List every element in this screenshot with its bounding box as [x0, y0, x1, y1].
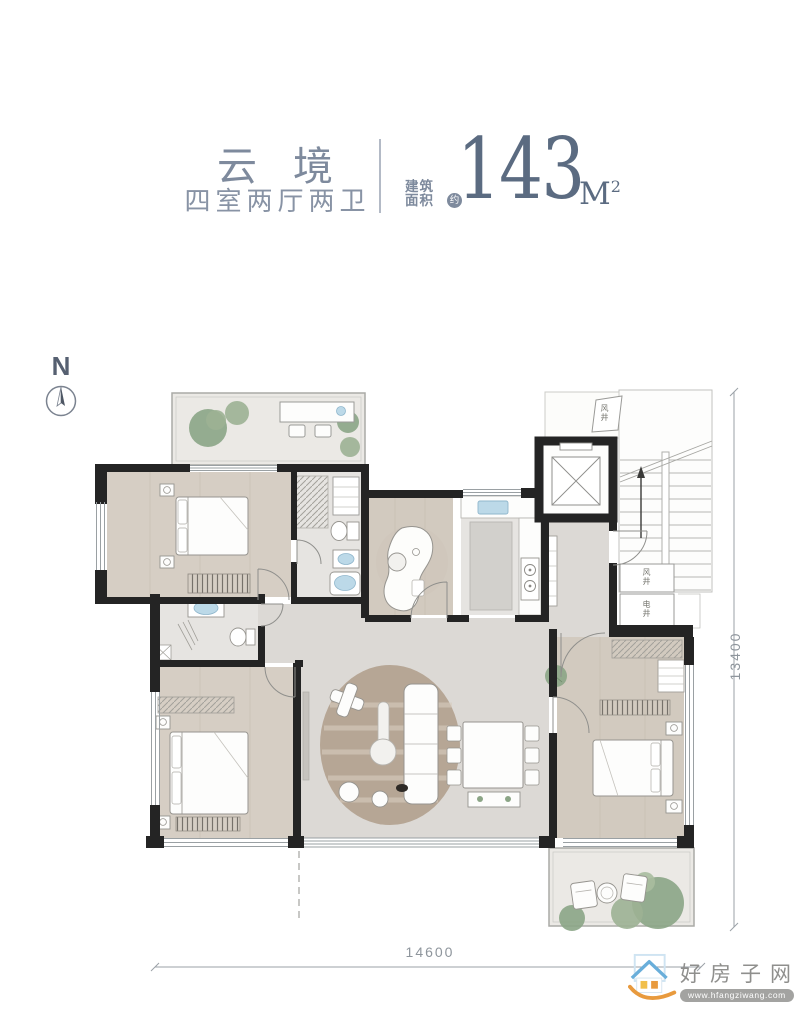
dimension-right-height: 13400: [727, 618, 743, 694]
shaft-label-right-lower: 电井: [641, 600, 652, 618]
dimension-bottom-width: 14600: [355, 944, 505, 960]
watermark: 好房子网 www.hfangziwang.com: [628, 952, 800, 1012]
elevator: [539, 441, 613, 518]
house-logo-icon: [628, 952, 682, 1008]
kitchen: [461, 496, 541, 615]
watermark-site-url: www.hfangziwang.com: [680, 989, 794, 1002]
shaft-label-right-upper: 风井: [641, 568, 652, 586]
shaft-label-top: 风井: [599, 404, 610, 422]
floor-plan-canvas: [0, 0, 800, 1015]
watermark-site-name: 好房子网: [680, 958, 800, 988]
compass-rose: [47, 387, 76, 416]
floor-plan-page: 云境 四室两厅两卫 建筑 面积 约 143 M2 N: [0, 0, 800, 1015]
